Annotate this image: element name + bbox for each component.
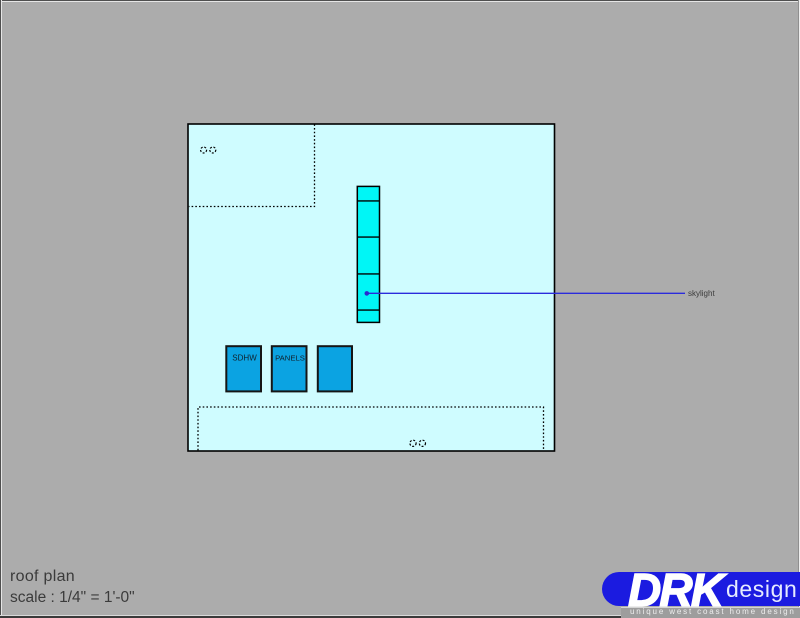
svg-text:skylight: skylight	[688, 289, 715, 298]
svg-text:PANELS: PANELS	[275, 354, 305, 363]
svg-text:SDHW: SDHW	[232, 354, 257, 363]
